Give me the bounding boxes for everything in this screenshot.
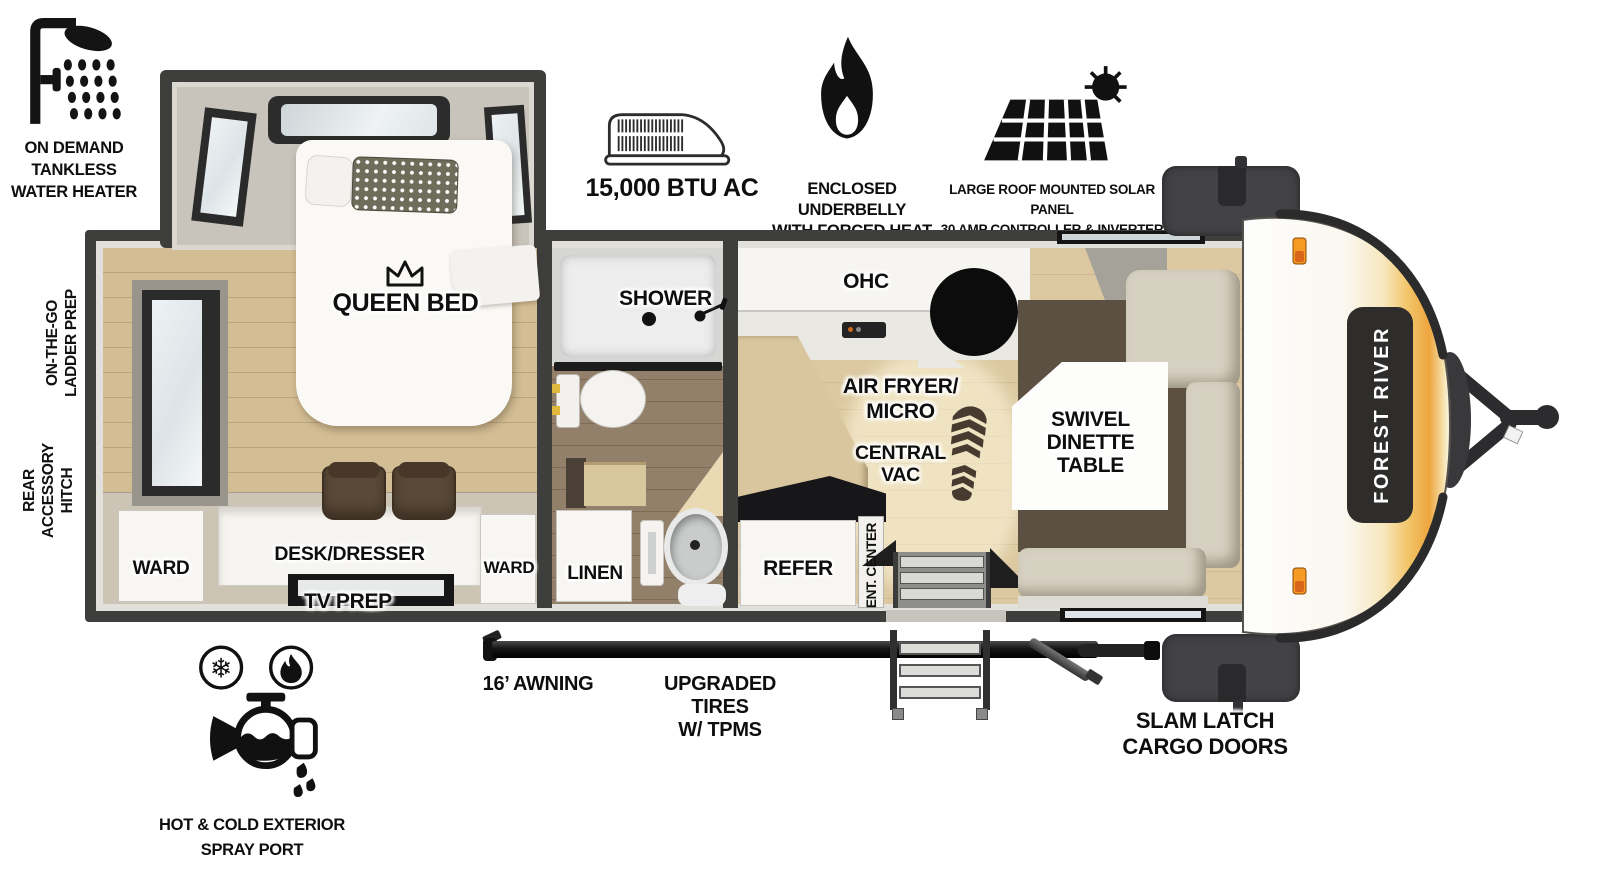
caption-line: WATER HEATER (4, 181, 144, 203)
solar-panel-icon (958, 64, 1136, 174)
label-line: ENT. CENTER (865, 522, 880, 607)
toilet-hinge (552, 384, 560, 393)
cooktop-knob (848, 327, 853, 332)
tankless-water-heater-icon (25, 16, 127, 128)
step-tread (899, 642, 981, 655)
awning-caption: 16’ AWNING (478, 673, 598, 696)
floor-strip (1018, 596, 1208, 608)
water-heater-caption: ON DEMAND TANKLESS WATER HEATER (4, 137, 144, 203)
desk-chair (392, 466, 456, 520)
tongue-bar (1078, 644, 1152, 657)
ac-unit-icon (600, 106, 740, 170)
rv-floorplan-diagram: ON DEMAND TANKLESS WATER HEATER 15,000 B… (0, 0, 1600, 871)
bath-fixture-slot (648, 532, 656, 574)
label-line: CENTRAL (828, 442, 973, 464)
caption-line: ACCESSORY (38, 443, 57, 538)
bed-bolster-cushion (351, 156, 459, 214)
crown-icon (383, 258, 427, 290)
caption-line: LADDER PREP (62, 289, 81, 397)
toilet (580, 370, 646, 428)
step-tread (899, 686, 981, 699)
caption-line: TANKLESS (4, 159, 144, 181)
ohc-label: OHC (821, 270, 911, 294)
linen-label: LINEN (552, 563, 638, 585)
marker-light (1293, 568, 1306, 594)
ac-caption: 15,000 BTU AC (572, 174, 772, 203)
caption-line: ON DEMAND (4, 137, 144, 159)
front-cap: FOREST RIVER (1210, 150, 1600, 710)
awning-roller (492, 641, 1098, 658)
step-tread (899, 664, 981, 677)
ward-right-label: WARD (477, 558, 541, 578)
caption-line: CARGO DOORS (1105, 734, 1305, 760)
marker-light (1293, 238, 1306, 264)
caption-line: W/ TPMS (638, 719, 802, 742)
label-line: VAC (828, 464, 973, 486)
caption-line: HITCH (57, 443, 76, 538)
shower-label: SHOWER (598, 287, 733, 311)
window-glass (152, 300, 202, 486)
bath-mat (678, 584, 726, 606)
shower-door-track (554, 362, 722, 371)
sofa-bench-bottom (1018, 548, 1206, 598)
rear-hitch-caption: REAR ACCESSORY HITCH (0, 420, 96, 560)
bath-cabinet-dark (566, 458, 586, 508)
caption-line: REAR (19, 443, 38, 538)
kitchen-sink (930, 268, 1018, 356)
bed-pillow (304, 154, 353, 207)
window-glass (1065, 611, 1201, 618)
cargo-doors-caption: SLAM LATCH CARGO DOORS (1105, 708, 1305, 760)
queen-bed-label: QUEEN BED (318, 289, 493, 318)
forced-heat-flame-icon (810, 32, 884, 158)
label-line: DINETTE (1028, 431, 1153, 454)
caption-line: HOT & COLD EXTERIOR (148, 813, 356, 838)
ward-left-label: WARD (116, 558, 206, 580)
tv-prep-label: TV PREP (268, 590, 428, 614)
caption-line: SPRAY PORT (148, 838, 356, 863)
caption-line: ENCLOSED UNDERBELLY (752, 179, 952, 221)
toilet-hinge (552, 406, 560, 415)
flame-icon (280, 654, 301, 683)
sink-drain (690, 540, 700, 550)
desk-dresser-label: DESK/DRESSER (247, 543, 452, 565)
snowflake-icon: ❄ (210, 652, 233, 683)
brand-logo-text: FOREST RIVER (1371, 326, 1393, 504)
caption-line: SLAM LATCH (1105, 708, 1305, 734)
central-vac-label: CENTRAL VAC (828, 442, 973, 486)
jack-foot (1085, 669, 1104, 686)
linen-cabinet (556, 510, 632, 602)
tongue-bar-cap (1144, 641, 1160, 660)
caption-line: ON-THE-GO (43, 289, 62, 397)
label-line: AIR FRYER/ (818, 374, 983, 399)
caption-line: LARGE ROOF MOUNTED SOLAR PANEL (938, 180, 1166, 220)
bath-cabinet (584, 462, 646, 506)
cooktop-knob (856, 327, 861, 332)
caption-line: UPGRADED TIRES (638, 673, 802, 719)
entry-door-opening (886, 610, 1006, 622)
step-foot (976, 708, 988, 720)
label-line: TABLE (1028, 454, 1153, 477)
desk-chair (322, 466, 386, 520)
spray-port-icon: ❄ (192, 642, 328, 798)
toilet-tank (556, 374, 580, 428)
air-fryer-label: AIR FRYER/ MICRO (818, 374, 983, 424)
front-cap-body (1243, 218, 1450, 634)
dinette-label: SWIVEL DINETTE TABLE (1028, 408, 1153, 477)
skylight-glass (281, 104, 437, 136)
label-line: SWIVEL (1028, 408, 1153, 431)
step-foot (892, 708, 904, 720)
ent-center-label: ENT. CENTER (822, 519, 922, 611)
wardrobe-left (118, 510, 204, 602)
label-line: MICRO (818, 399, 983, 424)
tires-caption: UPGRADED TIRES W/ TPMS (638, 673, 802, 742)
shower-drain (642, 312, 656, 326)
spray-port-caption: HOT & COLD EXTERIOR SPRAY PORT (148, 813, 356, 863)
